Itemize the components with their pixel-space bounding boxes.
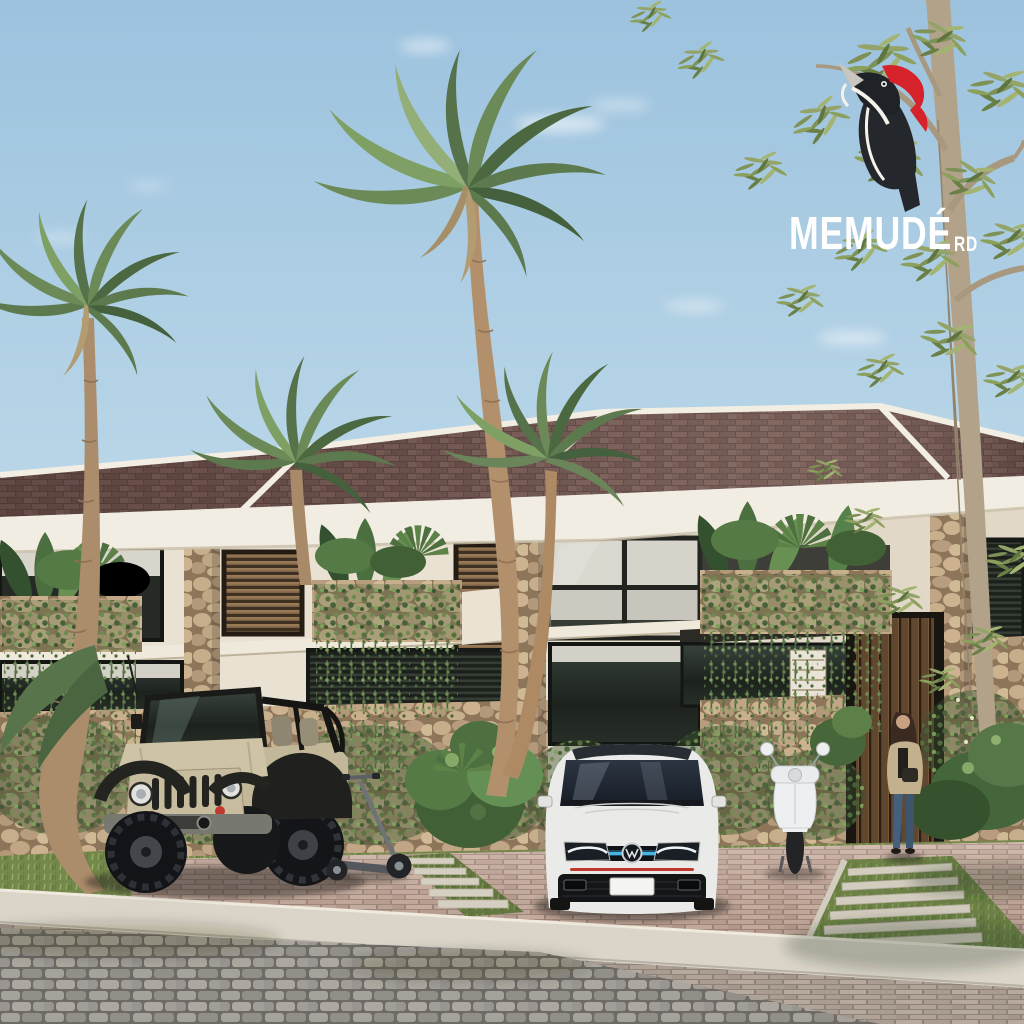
architectural-rendering: MEMUDÉ RD	[0, 0, 1024, 1024]
woman-shoes	[891, 848, 901, 854]
car-lower-bumper	[558, 874, 706, 902]
woman-shadow	[885, 853, 925, 863]
hanging-vines	[704, 632, 754, 752]
vespa-mirror-right	[817, 743, 830, 756]
vespa-headlight	[789, 769, 802, 782]
white-sedan	[534, 744, 730, 921]
scooter-handlebar	[346, 776, 376, 778]
louver-window-left	[224, 552, 302, 634]
car-windshield	[560, 760, 704, 806]
brand-suffix: RD	[954, 233, 978, 256]
woman-face	[896, 715, 910, 729]
car-mirror-right	[712, 796, 726, 807]
jeep-mirror	[131, 714, 142, 729]
vespa-mirror-left	[761, 743, 774, 756]
jeep-front-left-wheel	[105, 811, 187, 893]
woman-bag	[902, 768, 918, 782]
brand-name: MEMUDÉ	[789, 207, 952, 259]
lower-center-glass	[550, 644, 700, 744]
balcony-parapet	[462, 588, 502, 645]
scene-canvas: MEMUDÉ RD	[0, 0, 1024, 1024]
car-red-trim	[570, 868, 694, 871]
car-mirror-left	[538, 796, 552, 807]
car-license-plate	[610, 878, 654, 895]
